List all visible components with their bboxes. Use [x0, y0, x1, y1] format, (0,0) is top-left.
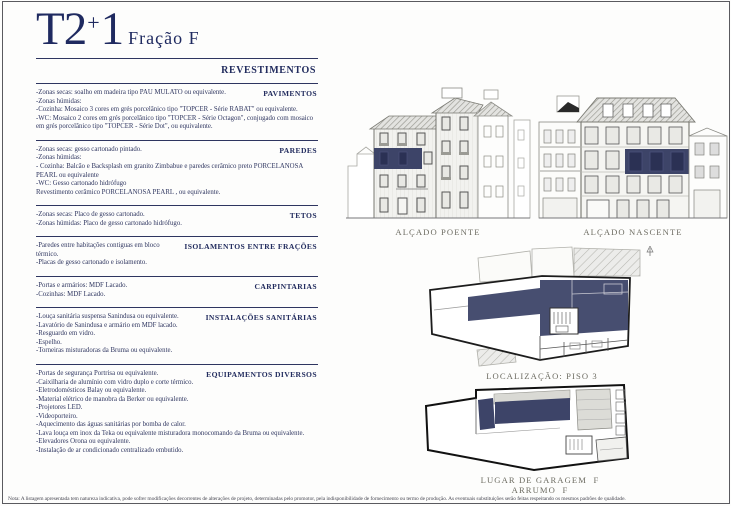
spec-column: T2 + 1 Fração F REVESTIMENTOS PAVIMENTOS… — [36, 6, 318, 460]
garagem-floor-plan — [420, 380, 660, 472]
section-content: -Zonas secas: gesso cartonado pintado. -… — [36, 145, 318, 200]
section-instalacoes-sanitarias: INSTALAÇÕES SANITÁRIAS -Louça sanitária … — [36, 307, 318, 359]
divider — [36, 364, 318, 365]
alcado-nascente-drawing: ALÇADO NASCENTE — [537, 86, 729, 237]
section-title: TETOS — [290, 211, 317, 220]
divider — [36, 58, 318, 59]
section-isolamentos: ISOLAMENTOS ENTRE FRAÇÕES -Paredes entre… — [36, 236, 318, 271]
section-carpintarias: CARPINTARIAS -Portas e armários: MDF Lac… — [36, 276, 318, 302]
garagem-caption-line1: LUGAR DE GARAGEM F — [420, 475, 660, 485]
footer-note: Nota: A listagem apresentada tem naturez… — [8, 496, 725, 502]
section-title: EQUIPAMENTOS DIVERSOS — [206, 370, 317, 379]
section-paredes: PAREDES -Zonas secas: gesso cartonado pi… — [36, 140, 318, 200]
alcado-poente-caption: ALÇADO POENTE — [344, 227, 532, 237]
divider — [36, 83, 318, 84]
section-title: ISOLAMENTOS ENTRE FRAÇÕES — [184, 242, 317, 251]
piso3-plan-drawing: LOCALIZAÇÃO: PISO 3 — [422, 246, 662, 381]
title-plus-sign: + — [87, 10, 99, 36]
section-title: PAVIMENTOS — [263, 89, 317, 98]
divider — [36, 236, 318, 237]
piso3-floor-plan — [422, 246, 662, 368]
divider — [36, 276, 318, 277]
section-equipamentos-diversos: EQUIPAMENTOS DIVERSOS -Portas de seguran… — [36, 364, 318, 459]
section-content: -Zonas secas: Placo de gesso cartonado. … — [36, 210, 318, 231]
title-fraction: Fração F — [128, 28, 199, 49]
divider — [36, 140, 318, 141]
alcado-poente-drawing: ALÇADO POENTE — [344, 86, 532, 237]
title-typology-extra: 1 — [101, 6, 125, 53]
revestimentos-header: REVESTIMENTOS — [36, 63, 318, 78]
section-tetos: TETOS -Zonas secas: Placo de gesso carto… — [36, 205, 318, 231]
garagem-plan-drawing: LUGAR DE GARAGEM F ARRUMO F — [420, 380, 660, 495]
page-title: T2 + 1 Fração F — [36, 6, 318, 53]
section-title: CARPINTARIAS — [255, 282, 317, 291]
alcado-nascente-caption: ALÇADO NASCENTE — [537, 227, 729, 237]
divider — [36, 205, 318, 206]
section-pavimentos: PAVIMENTOS -Zonas secas: soalho em madei… — [36, 83, 318, 135]
section-title: INSTALAÇÕES SANITÁRIAS — [206, 313, 317, 322]
section-content: -Portas de segurança Portrisa ou equival… — [36, 369, 318, 459]
alcado-nascente-elevation — [537, 86, 729, 224]
divider — [36, 307, 318, 308]
garagem-caption-line2: ARRUMO F — [420, 485, 660, 495]
section-title: PAREDES — [279, 146, 317, 155]
title-typology: T2 — [36, 6, 86, 53]
alcado-poente-elevation — [344, 86, 532, 224]
